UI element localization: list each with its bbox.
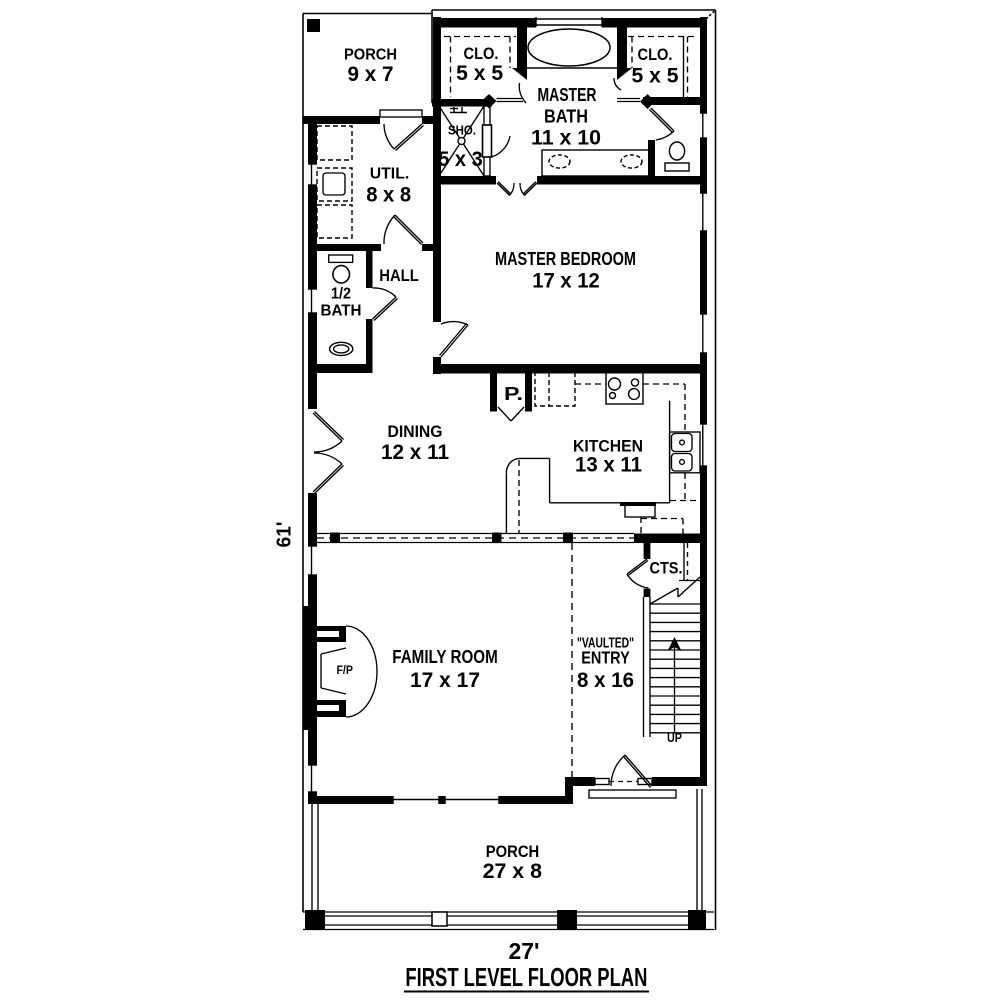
svg-text:MASTER BEDROOM: MASTER BEDROOM: [495, 249, 636, 269]
svg-text:12 x 11: 12 x 11: [381, 441, 449, 464]
svg-text:5 x 3: 5 x 3: [438, 148, 483, 171]
svg-text:13 x 11: 13 x 11: [575, 454, 642, 477]
svg-text:PORCH: PORCH: [486, 842, 540, 861]
svg-text:5 x 5: 5 x 5: [632, 65, 679, 88]
svg-text:27 x 8: 27 x 8: [483, 860, 543, 883]
svg-text:FAMILY ROOM: FAMILY ROOM: [392, 647, 498, 667]
svg-text:F/P: F/P: [336, 663, 353, 677]
svg-text:27': 27': [509, 938, 540, 964]
svg-text:P.: P.: [504, 384, 523, 404]
svg-text:PORCH: PORCH: [344, 47, 397, 64]
svg-text:9 x 7: 9 x 7: [348, 63, 394, 86]
svg-text:BATH: BATH: [544, 107, 588, 127]
svg-text:CLO.: CLO.: [638, 45, 673, 64]
svg-text:8 x 8: 8 x 8: [366, 184, 411, 207]
svg-text:17 x 17: 17 x 17: [410, 669, 480, 692]
svg-text:CLO.: CLO.: [464, 44, 499, 63]
svg-text:BATH: BATH: [321, 303, 362, 320]
svg-text:1/2: 1/2: [331, 286, 351, 303]
svg-text:UTIL.: UTIL.: [370, 166, 410, 183]
svg-text:SHO.: SHO.: [448, 124, 476, 138]
svg-text:FIRST LEVEL FLOOR PLAN: FIRST LEVEL FLOOR PLAN: [405, 962, 647, 992]
svg-text:61': 61': [274, 522, 296, 548]
svg-text:MASTER: MASTER: [538, 85, 597, 105]
svg-text:HALL: HALL: [379, 266, 419, 285]
svg-text:8 x 16: 8 x 16: [577, 669, 634, 692]
svg-text:ENTRY: ENTRY: [581, 648, 630, 668]
svg-text:5 x 5: 5 x 5: [456, 62, 503, 85]
svg-text:UP: UP: [667, 731, 682, 745]
svg-text:DINING: DINING: [388, 423, 443, 441]
svg-text:CTS.: CTS.: [650, 559, 683, 578]
svg-text:17 x 12: 17 x 12: [532, 270, 600, 293]
svg-text:11 x 10: 11 x 10: [531, 127, 601, 150]
